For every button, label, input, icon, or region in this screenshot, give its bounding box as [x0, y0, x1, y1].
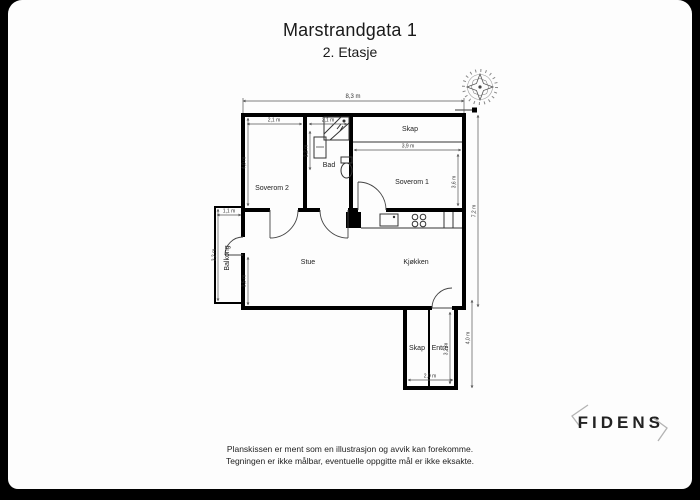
dim-entre-width: 2,0 m: [424, 374, 437, 380]
room-label-soverom1: Soverom 1: [395, 179, 429, 186]
kitchen-sink-icon: [380, 214, 398, 226]
room-label-kjokken: Kjøkken: [403, 259, 428, 266]
door-soverom2: [270, 210, 298, 238]
disclaimer-line-2: Tegningen er ikke målbar, eventuelle opp…: [8, 456, 692, 467]
dim-balkong-width: 1,1 m: [223, 209, 236, 215]
door-entre: [432, 288, 452, 308]
room-label-skap-top: Skap: [402, 126, 418, 133]
scale-bar-icon: [455, 108, 477, 113]
compass-rose-icon: [464, 71, 497, 104]
kitchen-counter: [361, 212, 462, 228]
disclaimer: Planskissen er ment som en illustrasjon …: [8, 444, 692, 467]
dim-soverom2-depth: 4,0 m: [242, 157, 248, 170]
dim-lower-right-total: 4,0 m: [466, 332, 472, 345]
dim-balkong-length: 3,2 m: [212, 249, 218, 262]
dim-total-width: 8,3 m: [345, 94, 360, 100]
stove-icon: [412, 214, 426, 227]
dim-soverom2-width: 2,1 m: [268, 118, 281, 124]
room-label-bad: Bad: [323, 162, 336, 169]
room-label-soverom2: Soverom 2: [255, 185, 289, 192]
room-label-entre: Entré: [432, 345, 449, 352]
room-label-stue: Stue: [301, 259, 316, 266]
floorplan-page: Marstrandgata 1 2. Etasje: [8, 0, 692, 489]
dim-bad-depth: 2,2 m: [304, 145, 310, 158]
dim-soverom1-width: 3,9 m: [402, 144, 415, 150]
dim-right-total: 7,2 m: [472, 205, 478, 218]
dim-bad-width: 2,1 m: [322, 118, 335, 124]
room-label-skap-entre: Skap: [409, 345, 425, 352]
dim-stue-wall: 3,5 m: [242, 275, 248, 288]
disclaimer-line-1: Planskissen er ment som en illustrasjon …: [8, 444, 692, 455]
door-soverom1: [358, 182, 386, 210]
room-label-balkong: Balkong: [224, 245, 231, 270]
door-bad: [320, 210, 348, 238]
dim-soverom1-depth: 3,6 m: [452, 176, 458, 189]
brand-logo: FIDENS: [578, 413, 664, 433]
